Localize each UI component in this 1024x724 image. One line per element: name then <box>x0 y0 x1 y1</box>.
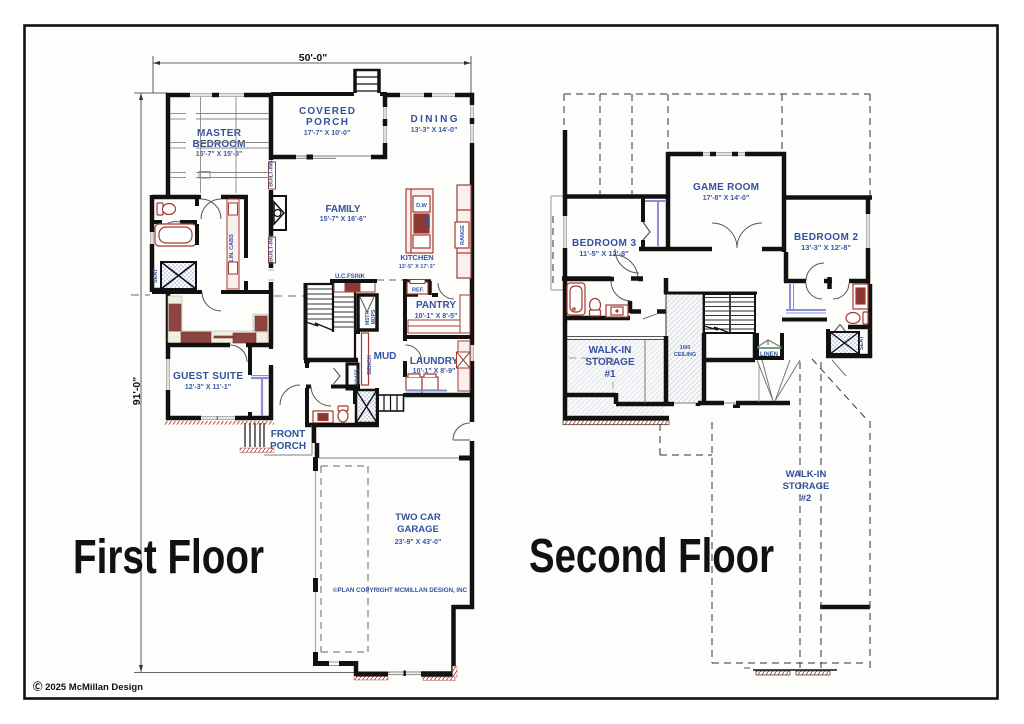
svg-text:FAMILY: FAMILY <box>326 204 361 215</box>
svg-text:WALK-IN: WALK-IN <box>589 345 632 356</box>
svg-text:15'-7" X 16'-6": 15'-7" X 16'-6" <box>320 216 367 223</box>
svg-text:10/0: 10/0 <box>680 345 691 351</box>
svg-text:COATS: COATS <box>355 368 361 386</box>
svg-text:23'-9" X 43'-0": 23'-9" X 43'-0" <box>395 539 442 546</box>
svg-text:17'-8" X 14'-0": 17'-8" X 14'-0" <box>703 195 750 202</box>
svg-text:COVERED: COVERED <box>299 106 355 117</box>
svg-text:GUEST SUITE: GUEST SUITE <box>173 371 243 382</box>
svg-text:15'-7" X 15'-8": 15'-7" X 15'-8" <box>196 151 243 158</box>
svg-text:MASTER: MASTER <box>197 128 242 139</box>
svg-text:First Floor: First Floor <box>73 531 264 584</box>
svg-text:TWO CAR: TWO CAR <box>395 512 441 523</box>
svg-text:BEDROOM 2: BEDROOM 2 <box>794 232 858 243</box>
svg-text:13'-5" X 17'-3": 13'-5" X 17'-3" <box>399 264 436 270</box>
svg-text:SINK: SINK <box>426 215 432 228</box>
svg-text:Ⓒ 2025 McMillan Design: Ⓒ 2025 McMillan Design <box>33 681 143 693</box>
svg-text:PANTRY: PANTRY <box>416 300 456 311</box>
svg-text:Second Floor: Second Floor <box>529 530 774 583</box>
svg-text:DINING: DINING <box>411 114 458 125</box>
svg-text:GARAGE: GARAGE <box>397 524 439 535</box>
svg-text:PORCH: PORCH <box>270 441 306 452</box>
svg-text:RANGE: RANGE <box>460 225 466 245</box>
svg-text:WALK-IN: WALK-IN <box>786 469 827 480</box>
svg-text:#1: #1 <box>604 369 616 380</box>
svg-text:BEDROOM 3: BEDROOM 3 <box>572 238 636 249</box>
svg-text:50'-0": 50'-0" <box>299 52 328 64</box>
svg-text:SEAT: SEAT <box>859 335 865 350</box>
svg-text:#2: #2 <box>801 493 812 504</box>
svg-text:12'-3" X 11'-1": 12'-3" X 11'-1" <box>185 384 231 391</box>
svg-text:REF.: REF. <box>412 288 425 294</box>
svg-text:LAUNDRY: LAUNDRY <box>410 356 459 367</box>
svg-text:BUILT-INS: BUILT-INS <box>269 160 275 187</box>
svg-text:STORAGE: STORAGE <box>783 481 830 492</box>
svg-text:13'-3" X 12'-8": 13'-3" X 12'-8" <box>801 243 851 252</box>
svg-text:91'-0": 91'-0" <box>131 377 143 406</box>
svg-text:LINEN: LINEN <box>760 352 778 358</box>
svg-text:BENCH: BENCH <box>367 355 373 375</box>
svg-text:GAME ROOM: GAME ROOM <box>693 182 759 193</box>
svg-text:CEILING: CEILING <box>674 352 696 358</box>
svg-text:MOPS: MOPS <box>371 309 377 324</box>
svg-text:BUILT-INS: BUILT-INS <box>269 235 275 262</box>
svg-text:©PLAN COPYRIGHT MCMILLAN DESIG: ©PLAN COPYRIGHT MCMILLAN DESIGN, INC <box>333 587 468 594</box>
svg-text:FRONT: FRONT <box>271 429 305 440</box>
svg-text:D.W: D.W <box>416 203 428 209</box>
svg-text:MUD: MUD <box>374 351 397 362</box>
svg-text:13'-3" X 14'-0": 13'-3" X 14'-0" <box>411 127 458 134</box>
svg-text:10'-1" X 8'-5": 10'-1" X 8'-5" <box>415 313 458 320</box>
svg-text:LIN. CABS: LIN. CABS <box>229 234 235 262</box>
svg-text:SEAT: SEAT <box>153 268 159 283</box>
svg-text:STORAGE: STORAGE <box>585 357 635 368</box>
svg-text:17'-7" X 10'-0": 17'-7" X 10'-0" <box>304 130 351 137</box>
svg-text:KITCHEN: KITCHEN <box>400 253 433 262</box>
svg-text:PORCH: PORCH <box>306 117 348 128</box>
